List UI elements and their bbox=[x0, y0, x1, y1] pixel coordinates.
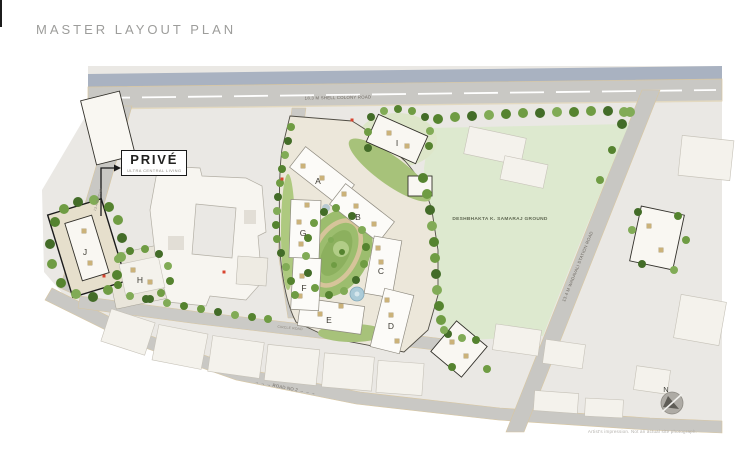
tree-icon bbox=[114, 281, 122, 289]
tree-icon bbox=[278, 165, 286, 173]
tree-icon bbox=[432, 285, 442, 295]
tree-icon bbox=[682, 236, 690, 244]
entry-marker-icon bbox=[351, 119, 354, 122]
entry-marker-icon bbox=[223, 271, 226, 274]
balcony-mark bbox=[387, 131, 392, 136]
tree-icon bbox=[126, 292, 134, 300]
tree-icon bbox=[380, 107, 388, 115]
tree-icon bbox=[310, 219, 318, 227]
balcony-mark bbox=[339, 304, 344, 309]
tree-icon bbox=[448, 363, 456, 371]
tree-icon bbox=[282, 263, 290, 271]
tree-icon bbox=[117, 233, 127, 243]
tree-icon bbox=[625, 107, 635, 117]
tree-icon bbox=[104, 202, 114, 212]
tree-icon bbox=[272, 221, 280, 229]
entry-marker-icon bbox=[103, 275, 106, 278]
balcony-mark bbox=[131, 268, 136, 273]
building-footprint bbox=[533, 390, 578, 413]
tree-icon bbox=[273, 235, 281, 243]
tree-icon bbox=[608, 146, 616, 154]
tree-icon bbox=[472, 336, 480, 344]
tree-icon bbox=[603, 106, 613, 116]
balcony-mark bbox=[305, 203, 310, 208]
tree-icon bbox=[291, 291, 299, 299]
balcony-mark bbox=[376, 246, 381, 251]
tree-icon bbox=[264, 315, 272, 323]
tree-icon bbox=[114, 255, 122, 263]
tree-icon bbox=[180, 302, 188, 310]
balcony-mark bbox=[342, 192, 347, 197]
tree-icon bbox=[617, 119, 627, 129]
tree-icon bbox=[427, 221, 437, 231]
tree-icon bbox=[166, 277, 174, 285]
tree-icon bbox=[634, 208, 642, 216]
tree-icon bbox=[103, 285, 113, 295]
tree-icon bbox=[425, 142, 433, 150]
tree-icon bbox=[155, 250, 163, 258]
tree-icon bbox=[586, 106, 596, 116]
building-label-e: E bbox=[326, 315, 332, 325]
tree-icon bbox=[434, 301, 444, 311]
neighbour-complex-core2 bbox=[244, 210, 256, 224]
tree-icon bbox=[47, 259, 57, 269]
building-label-g: G bbox=[300, 228, 307, 238]
tree-icon bbox=[328, 237, 334, 243]
building-label-d: D bbox=[388, 321, 394, 331]
tree-icon bbox=[436, 315, 446, 325]
prive-project-subtitle: ULTRA CENTRAL LIVING bbox=[127, 168, 181, 173]
tree-icon bbox=[332, 204, 340, 212]
tree-icon bbox=[56, 278, 66, 288]
tree-icon bbox=[302, 252, 310, 260]
tree-icon bbox=[142, 295, 150, 303]
balcony-mark bbox=[297, 220, 302, 225]
tree-icon bbox=[163, 299, 171, 307]
tree-icon bbox=[596, 176, 604, 184]
tree-icon bbox=[164, 262, 172, 270]
tree-icon bbox=[458, 334, 466, 342]
building-footprint bbox=[674, 294, 727, 345]
tree-icon bbox=[674, 212, 682, 220]
building-label-h: H bbox=[137, 275, 143, 285]
tree-icon bbox=[113, 215, 123, 225]
building-footprint bbox=[376, 360, 424, 395]
tree-icon bbox=[628, 226, 636, 234]
tree-icon bbox=[569, 107, 579, 117]
tree-icon bbox=[433, 114, 443, 124]
balcony-mark bbox=[301, 164, 306, 169]
building-label-j: J bbox=[83, 247, 87, 257]
building-label-a: A bbox=[315, 176, 321, 186]
tree-icon bbox=[484, 110, 494, 120]
tree-icon bbox=[320, 208, 328, 216]
tree-icon bbox=[467, 111, 477, 121]
tree-icon bbox=[59, 204, 69, 214]
tree-icon bbox=[197, 305, 205, 313]
balcony-mark bbox=[299, 242, 304, 247]
tree-icon bbox=[358, 226, 366, 234]
tree-icon bbox=[450, 112, 460, 122]
building-footprint bbox=[322, 353, 375, 391]
tree-icon bbox=[430, 253, 440, 263]
water-feature-center bbox=[355, 292, 360, 297]
tree-icon bbox=[277, 249, 285, 257]
tree-icon bbox=[501, 109, 511, 119]
entry-marker-icon bbox=[281, 178, 284, 181]
tree-icon bbox=[429, 237, 439, 247]
tree-icon bbox=[518, 108, 528, 118]
tree-icon bbox=[141, 245, 149, 253]
tree-icon bbox=[274, 193, 282, 201]
tree-icon bbox=[88, 292, 98, 302]
balcony-mark bbox=[659, 248, 664, 253]
tree-icon bbox=[440, 326, 448, 334]
tree-icon bbox=[340, 287, 348, 295]
tree-icon bbox=[287, 277, 295, 285]
tree-icon bbox=[304, 269, 312, 277]
neighbour-complex-core bbox=[168, 236, 184, 250]
tree-icon bbox=[638, 260, 646, 268]
tree-icon bbox=[364, 128, 372, 136]
balcony-mark bbox=[148, 280, 153, 285]
building-footprint bbox=[678, 135, 734, 180]
prive-project-name: PRIVÉ bbox=[127, 153, 181, 167]
tree-icon bbox=[483, 365, 491, 373]
tree-icon bbox=[287, 123, 295, 131]
balcony-mark bbox=[405, 144, 410, 149]
tree-icon bbox=[364, 144, 372, 152]
tree-icon bbox=[408, 107, 416, 115]
tree-icon bbox=[126, 247, 134, 255]
tree-icon bbox=[325, 291, 333, 299]
tree-icon bbox=[73, 197, 83, 207]
tree-icon bbox=[311, 284, 319, 292]
neighbour-complex-wing bbox=[236, 256, 268, 286]
balcony-mark bbox=[354, 204, 359, 209]
site-plan-map: 18.3 M SHELL COLONY ROAD 13.4 M ROAD 13.… bbox=[0, 0, 754, 455]
tree-icon bbox=[281, 151, 289, 159]
tree-icon bbox=[284, 137, 292, 145]
building-footprint bbox=[585, 398, 624, 418]
tree-icon bbox=[352, 276, 360, 284]
tree-icon bbox=[425, 205, 435, 215]
tree-icon bbox=[231, 311, 239, 319]
building-label-f: F bbox=[301, 283, 306, 293]
balcony-mark bbox=[389, 313, 394, 318]
balcony-mark bbox=[647, 224, 652, 229]
balcony-mark bbox=[82, 229, 87, 234]
tree-icon bbox=[157, 289, 165, 297]
disclaimer-text: Artist's impression. Not an actual site … bbox=[588, 429, 697, 434]
balcony-mark bbox=[464, 354, 469, 359]
tree-icon bbox=[535, 108, 545, 118]
tree-icon bbox=[431, 269, 441, 279]
building-label-c: C bbox=[378, 266, 384, 276]
balcony-mark bbox=[450, 340, 455, 345]
tree-icon bbox=[367, 113, 375, 121]
tree-icon bbox=[248, 313, 256, 321]
tree-icon bbox=[670, 266, 678, 274]
tree-icon bbox=[331, 262, 337, 268]
building-label-b: B bbox=[355, 212, 361, 222]
balcony-mark bbox=[385, 298, 390, 303]
tree-icon bbox=[426, 127, 434, 135]
tree-icon bbox=[45, 239, 55, 249]
tree-icon bbox=[552, 107, 562, 117]
tree-icon bbox=[360, 260, 368, 268]
tree-icon bbox=[71, 289, 81, 299]
tree-icon bbox=[273, 207, 281, 215]
tree-icon bbox=[418, 173, 428, 183]
building-label-i: I bbox=[396, 138, 398, 148]
tree-icon bbox=[394, 105, 402, 113]
balcony-mark bbox=[372, 222, 377, 227]
balcony-mark bbox=[300, 274, 305, 279]
balcony-mark bbox=[318, 312, 323, 317]
building-footprint bbox=[543, 339, 586, 368]
balcony-mark bbox=[88, 261, 93, 266]
tree-icon bbox=[214, 308, 222, 316]
prive-label-box: PRIVÉ ULTRA CENTRAL LIVING bbox=[121, 150, 187, 176]
tree-icon bbox=[422, 189, 432, 199]
balcony-mark bbox=[379, 260, 384, 265]
ground-label: DESHBHAKTA K. SAMARAJ GROUND bbox=[452, 216, 548, 222]
tree-icon bbox=[112, 270, 122, 280]
tree-icon bbox=[362, 243, 370, 251]
building-footprint bbox=[208, 336, 265, 379]
building-footprint bbox=[264, 344, 319, 385]
tree-icon bbox=[339, 249, 345, 255]
balcony-mark bbox=[395, 339, 400, 344]
master-layout-page: MASTER LAYOUT PLAN bbox=[0, 0, 754, 455]
tree-icon bbox=[421, 113, 429, 121]
tree-icon bbox=[50, 217, 60, 227]
